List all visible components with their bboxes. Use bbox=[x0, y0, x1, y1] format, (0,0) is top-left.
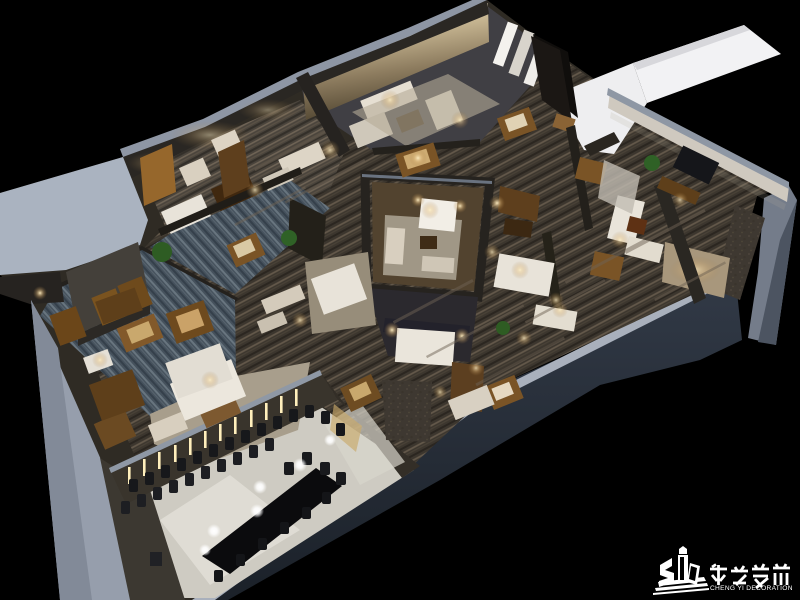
svg-text:CHENG YI DECORATION: CHENG YI DECORATION bbox=[710, 585, 793, 592]
